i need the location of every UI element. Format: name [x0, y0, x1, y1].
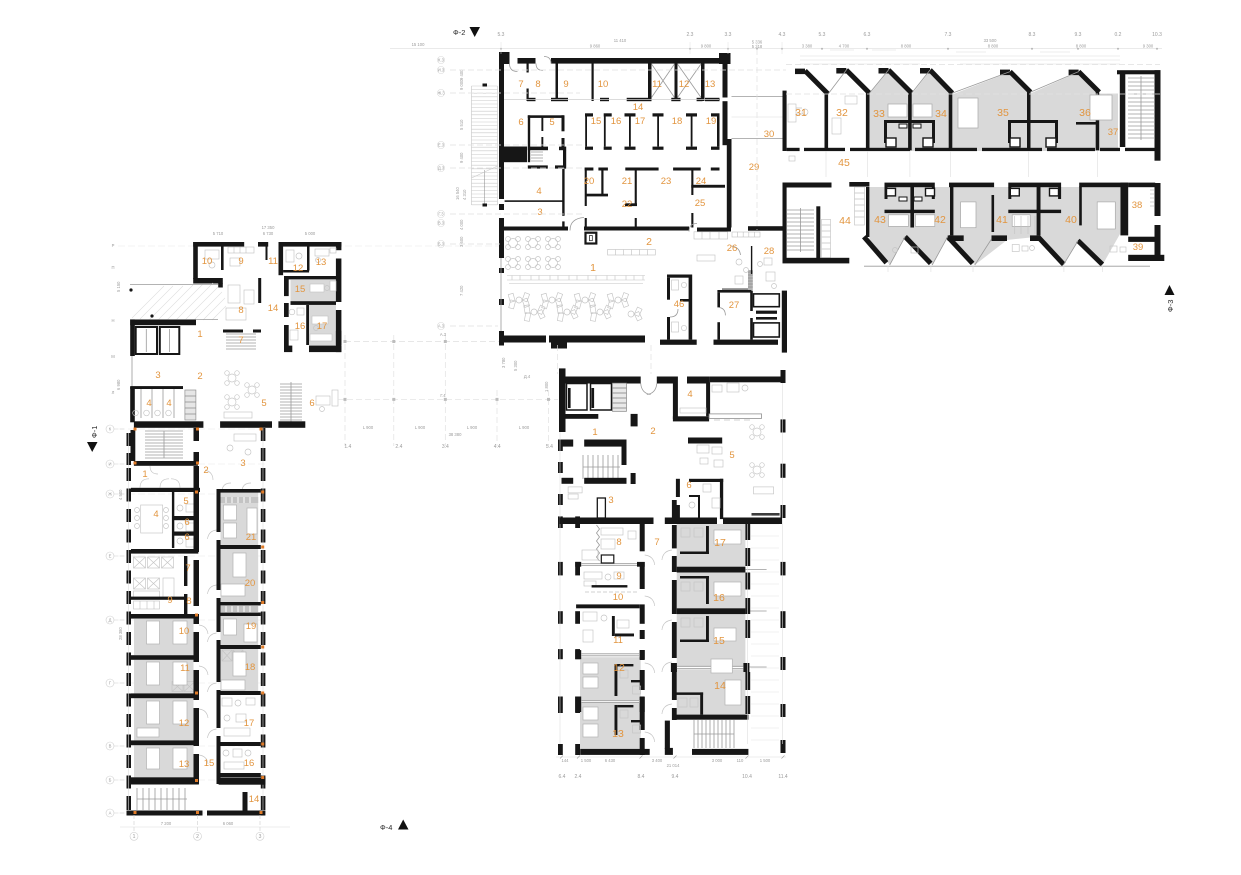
svg-text:2: 2: [196, 834, 199, 840]
svg-text:9 000: 9 000: [459, 79, 464, 90]
svg-text:Д.4: Д.4: [524, 374, 531, 379]
svg-text:11 410: 11 410: [614, 38, 627, 43]
svg-text:17 350: 17 350: [262, 225, 275, 230]
svg-text:16: 16: [295, 321, 306, 332]
svg-text:3.4: 3.4: [442, 444, 449, 450]
svg-text:15: 15: [295, 284, 306, 295]
svg-text:12: 12: [179, 718, 190, 729]
svg-text:110: 110: [737, 758, 744, 763]
svg-text:14: 14: [714, 680, 726, 692]
svg-text:29: 29: [749, 162, 760, 173]
svg-text:L 900: L 900: [467, 425, 478, 430]
svg-text:5 150: 5 150: [116, 281, 121, 292]
svg-text:3 600: 3 600: [459, 236, 464, 247]
svg-text:18: 18: [672, 116, 683, 127]
svg-text:13: 13: [179, 759, 190, 770]
svg-text:44: 44: [839, 215, 851, 227]
svg-text:7: 7: [518, 79, 523, 90]
svg-text:3 000: 3 000: [712, 758, 723, 763]
svg-text:15: 15: [591, 116, 602, 127]
svg-text:Л: Л: [112, 390, 115, 395]
svg-text:45: 45: [838, 157, 850, 169]
svg-text:2.3: 2.3: [687, 32, 694, 38]
svg-text:6.4: 6.4: [559, 774, 566, 780]
svg-text:20: 20: [245, 578, 256, 589]
svg-text:6 430: 6 430: [605, 758, 616, 763]
svg-text:8.4: 8.4: [638, 774, 645, 780]
svg-text:6 730: 6 730: [263, 231, 274, 236]
svg-text:16: 16: [713, 592, 725, 604]
svg-text:15: 15: [713, 635, 725, 647]
svg-text:9.4: 9.4: [672, 774, 679, 780]
svg-text:9: 9: [238, 256, 243, 267]
svg-text:3 380: 3 380: [802, 44, 813, 49]
svg-text:5 710: 5 710: [213, 231, 224, 236]
svg-text:46: 46: [674, 299, 685, 310]
svg-text:21: 21: [246, 532, 257, 543]
svg-text:8 800: 8 800: [1076, 44, 1087, 49]
svg-text:14: 14: [268, 303, 279, 314]
svg-text:21: 21: [622, 176, 633, 187]
svg-text:2.4: 2.4: [395, 444, 402, 450]
svg-text:11.4: 11.4: [778, 774, 788, 780]
svg-text:10.3: 10.3: [1152, 32, 1162, 38]
svg-text:10: 10: [598, 79, 609, 90]
svg-text:А.3: А.3: [438, 324, 445, 329]
svg-text:10.4: 10.4: [742, 774, 752, 780]
svg-text:17: 17: [635, 116, 646, 127]
svg-text:10: 10: [202, 256, 213, 267]
svg-text:В.3: В.3: [438, 221, 445, 226]
svg-text:16: 16: [244, 758, 255, 769]
svg-text:13: 13: [612, 728, 624, 740]
svg-text:2.4: 2.4: [575, 774, 582, 780]
svg-text:8: 8: [186, 596, 191, 607]
svg-text:8: 8: [535, 79, 540, 90]
svg-text:17: 17: [317, 321, 328, 332]
svg-text:3: 3: [240, 458, 245, 469]
svg-text:2: 2: [203, 465, 208, 476]
svg-text:13: 13: [316, 257, 327, 268]
svg-text:18: 18: [245, 662, 256, 673]
svg-text:7.3: 7.3: [945, 32, 952, 38]
svg-text:3: 3: [608, 495, 613, 506]
svg-text:1: 1: [590, 262, 596, 274]
svg-text:5 510: 5 510: [459, 119, 464, 130]
svg-text:В: В: [109, 744, 112, 749]
svg-text:9.3: 9.3: [1075, 32, 1082, 38]
svg-text:Ф-3: Ф-3: [1166, 300, 1175, 312]
svg-text:7: 7: [185, 563, 190, 574]
svg-text:0.2: 0.2: [1115, 32, 1122, 38]
svg-text:19: 19: [246, 621, 257, 632]
svg-text:9: 9: [616, 571, 621, 582]
svg-text:3 780: 3 780: [501, 357, 506, 368]
svg-text:25: 25: [695, 198, 706, 209]
svg-text:38: 38: [1132, 200, 1143, 211]
svg-text:5: 5: [549, 117, 554, 128]
svg-text:4: 4: [687, 389, 692, 400]
svg-text:Д: Д: [109, 618, 112, 623]
svg-text:12: 12: [679, 79, 690, 90]
svg-text:6 060: 6 060: [223, 821, 234, 826]
svg-text:32: 32: [836, 107, 848, 119]
svg-text:1.4: 1.4: [344, 444, 351, 450]
svg-text:8: 8: [238, 305, 243, 316]
svg-text:1 500: 1 500: [581, 758, 592, 763]
svg-text:Е.3: Е.3: [438, 143, 445, 148]
svg-text:4.3: 4.3: [779, 32, 786, 38]
svg-text:38 380: 38 380: [449, 432, 462, 437]
svg-text:9 300: 9 300: [1143, 44, 1154, 49]
svg-text:1: 1: [133, 834, 136, 840]
svg-text:8.3: 8.3: [1029, 32, 1036, 38]
svg-text:4 700: 4 700: [839, 44, 850, 49]
svg-text:17: 17: [244, 718, 255, 729]
svg-text:11: 11: [652, 79, 662, 90]
svg-text:16: 16: [611, 116, 622, 127]
svg-text:4.4: 4.4: [494, 444, 501, 450]
svg-text:39: 39: [1133, 242, 1144, 253]
svg-text:Г.3: Г.3: [438, 212, 444, 217]
svg-text:L 900: L 900: [519, 425, 530, 430]
svg-text:5: 5: [183, 496, 188, 507]
svg-text:1: 1: [142, 469, 147, 480]
svg-text:6: 6: [309, 398, 314, 409]
svg-text:1: 1: [592, 427, 597, 438]
svg-text:8: 8: [616, 537, 621, 548]
svg-text:6: 6: [686, 480, 691, 491]
svg-text:4: 4: [536, 186, 541, 197]
svg-text:13: 13: [705, 79, 716, 90]
svg-text:5 300: 5 300: [513, 360, 518, 371]
svg-text:11: 11: [180, 663, 190, 674]
svg-text:6 980: 6 980: [116, 379, 121, 390]
svg-text:Н: Н: [111, 318, 114, 323]
svg-text:28: 28: [764, 246, 775, 257]
svg-text:1 500: 1 500: [760, 758, 771, 763]
svg-text:144: 144: [562, 758, 570, 763]
svg-text:Ф-4: Ф-4: [380, 823, 392, 832]
svg-text:36: 36: [1079, 107, 1091, 119]
svg-text:А.3: А.3: [440, 332, 447, 337]
svg-text:8 800: 8 800: [988, 44, 999, 49]
svg-text:Ж: Ж: [108, 492, 112, 497]
svg-text:М: М: [111, 354, 115, 359]
svg-text:4 500: 4 500: [118, 489, 123, 500]
svg-text:27: 27: [729, 300, 740, 311]
svg-text:23: 23: [661, 176, 672, 187]
svg-text:2: 2: [197, 371, 202, 382]
svg-text:5.3: 5.3: [819, 32, 826, 38]
svg-text:14: 14: [633, 102, 644, 113]
svg-text:9 860: 9 860: [590, 44, 601, 49]
svg-text:Ф-2: Ф-2: [453, 28, 465, 37]
svg-text:3.3: 3.3: [725, 32, 732, 38]
svg-text:А: А: [109, 811, 112, 816]
svg-text:5 318: 5 318: [752, 44, 763, 49]
svg-text:И: И: [108, 462, 111, 467]
svg-text:24: 24: [696, 176, 707, 187]
svg-text:Г.4: Г.4: [440, 393, 446, 398]
svg-text:15 100: 15 100: [412, 42, 425, 47]
svg-text:21 014: 21 014: [667, 763, 680, 768]
svg-text:20: 20: [584, 176, 595, 187]
svg-text:4: 4: [166, 398, 171, 409]
svg-text:7: 7: [238, 335, 243, 346]
svg-text:2: 2: [650, 426, 655, 437]
svg-text:6: 6: [184, 517, 189, 528]
svg-text:1 800: 1 800: [544, 381, 549, 392]
svg-text:30: 30: [764, 129, 775, 140]
svg-text:L 900: L 900: [363, 425, 374, 430]
svg-text:33 500: 33 500: [984, 38, 997, 43]
svg-text:31: 31: [795, 107, 807, 119]
svg-text:3 400: 3 400: [652, 758, 663, 763]
svg-text:41: 41: [996, 214, 1008, 226]
svg-text:3: 3: [537, 207, 542, 218]
svg-text:3: 3: [259, 834, 262, 840]
svg-text:12: 12: [613, 662, 625, 674]
svg-text:4: 4: [153, 509, 158, 520]
svg-text:9 400: 9 400: [459, 152, 464, 163]
svg-text:5: 5: [729, 450, 734, 461]
svg-text:Р: Р: [112, 243, 115, 248]
svg-text:12: 12: [293, 263, 304, 274]
svg-text:L 900: L 900: [415, 425, 426, 430]
svg-text:22: 22: [622, 199, 633, 210]
svg-text:16 540: 16 540: [455, 187, 460, 200]
svg-text:37: 37: [1108, 127, 1119, 138]
svg-text:33: 33: [873, 108, 885, 120]
svg-text:Ф-1: Ф-1: [90, 426, 99, 438]
svg-text:9: 9: [167, 595, 172, 606]
svg-text:9 800: 9 800: [701, 44, 712, 49]
svg-text:7 420: 7 420: [459, 285, 464, 296]
svg-text:7: 7: [654, 537, 659, 548]
svg-text:2: 2: [646, 236, 652, 248]
svg-text:28 380: 28 380: [118, 627, 123, 640]
svg-text:4 000: 4 000: [459, 219, 464, 230]
svg-text:11: 11: [268, 256, 278, 267]
svg-text:26: 26: [727, 243, 738, 254]
svg-text:7 200: 7 200: [161, 821, 172, 826]
svg-text:5: 5: [261, 398, 266, 409]
svg-text:6: 6: [184, 532, 189, 543]
svg-text:4: 4: [146, 398, 151, 409]
svg-text:9: 9: [563, 79, 568, 90]
svg-text:5.3: 5.3: [498, 32, 505, 38]
svg-text:П: П: [111, 265, 114, 270]
svg-text:Е: Е: [109, 554, 112, 559]
svg-text:8 800: 8 800: [901, 44, 912, 49]
svg-text:10: 10: [179, 626, 190, 637]
svg-text:6: 6: [518, 117, 523, 128]
svg-text:19: 19: [706, 116, 717, 127]
svg-text:К.3: К.3: [438, 58, 445, 63]
svg-text:4 310: 4 310: [462, 189, 467, 200]
svg-text:1: 1: [197, 329, 202, 340]
svg-text:10: 10: [613, 592, 624, 603]
svg-text:Б: Б: [109, 778, 112, 783]
svg-text:42: 42: [934, 214, 946, 226]
svg-text:14: 14: [249, 794, 260, 805]
svg-text:11: 11: [613, 635, 623, 646]
svg-text:15: 15: [204, 758, 215, 769]
svg-text:17: 17: [714, 537, 726, 549]
svg-text:Д.3: Д.3: [438, 166, 445, 171]
svg-text:35: 35: [997, 107, 1009, 119]
svg-text:5 000: 5 000: [305, 231, 316, 236]
svg-text:34: 34: [935, 108, 947, 120]
svg-text:9 400: 9 400: [459, 69, 464, 80]
svg-text:6.3: 6.3: [864, 32, 871, 38]
svg-text:5.4: 5.4: [546, 444, 553, 450]
svg-text:40: 40: [1065, 214, 1077, 226]
svg-text:43: 43: [874, 214, 886, 226]
svg-text:3: 3: [155, 370, 160, 381]
svg-text:Б.3: Б.3: [438, 242, 445, 247]
